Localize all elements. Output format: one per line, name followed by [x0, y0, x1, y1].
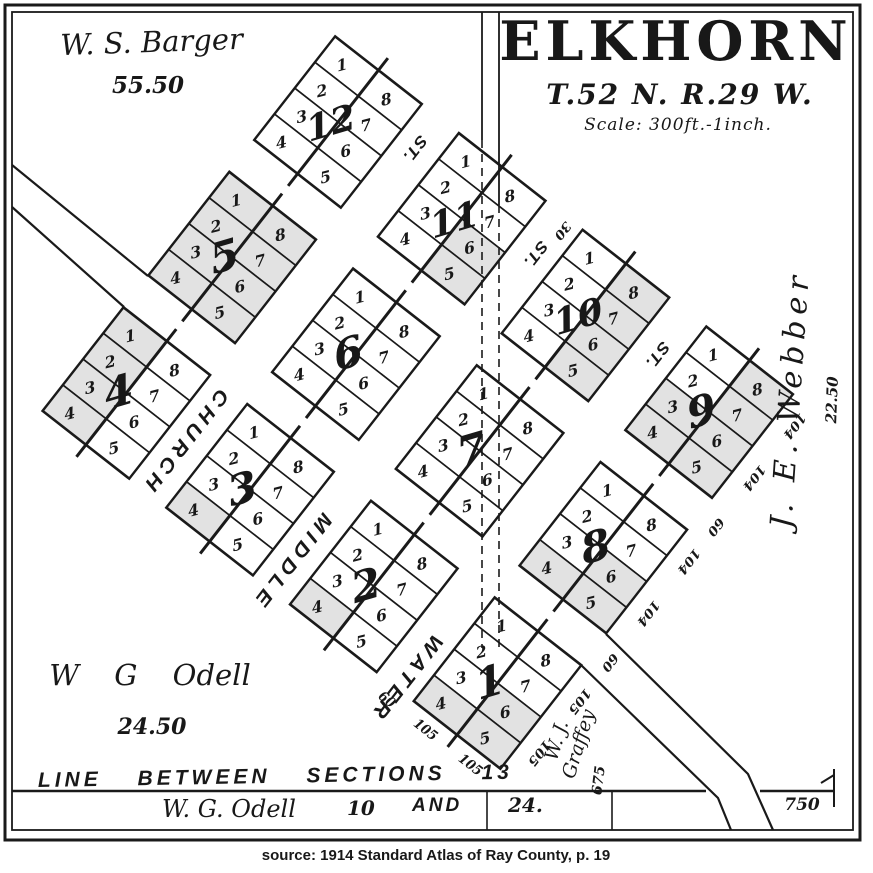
owner-barger-acres: 55.50	[112, 72, 184, 99]
plat-map-svg: 1827364512182736451118273645101827364591…	[0, 0, 873, 873]
map-title: ELKHORN	[499, 9, 852, 73]
section-number-10: 10	[347, 796, 375, 820]
section-line-and: AND	[411, 795, 462, 816]
township-range-label: T.52 N. R.29 W.	[546, 78, 814, 111]
dimension-750: 750	[784, 795, 820, 815]
source-caption: source: 1914 Standard Atlas of Ray Count…	[262, 847, 610, 864]
section-number-24: 24.	[507, 793, 543, 817]
page: 1827364512182736451118273645101827364591…	[0, 0, 873, 873]
owner-webber-acres: 22.50	[822, 375, 842, 424]
owner-odell-strip-name: W. G. Odell	[162, 795, 296, 823]
owner-odell-name: W G Odell	[49, 658, 250, 692]
scale-label: Scale: 300ft.-1inch.	[584, 115, 772, 135]
owner-odell-acres: 24.50	[117, 714, 188, 740]
owner-barger-name: W. S. Barger	[60, 22, 246, 62]
